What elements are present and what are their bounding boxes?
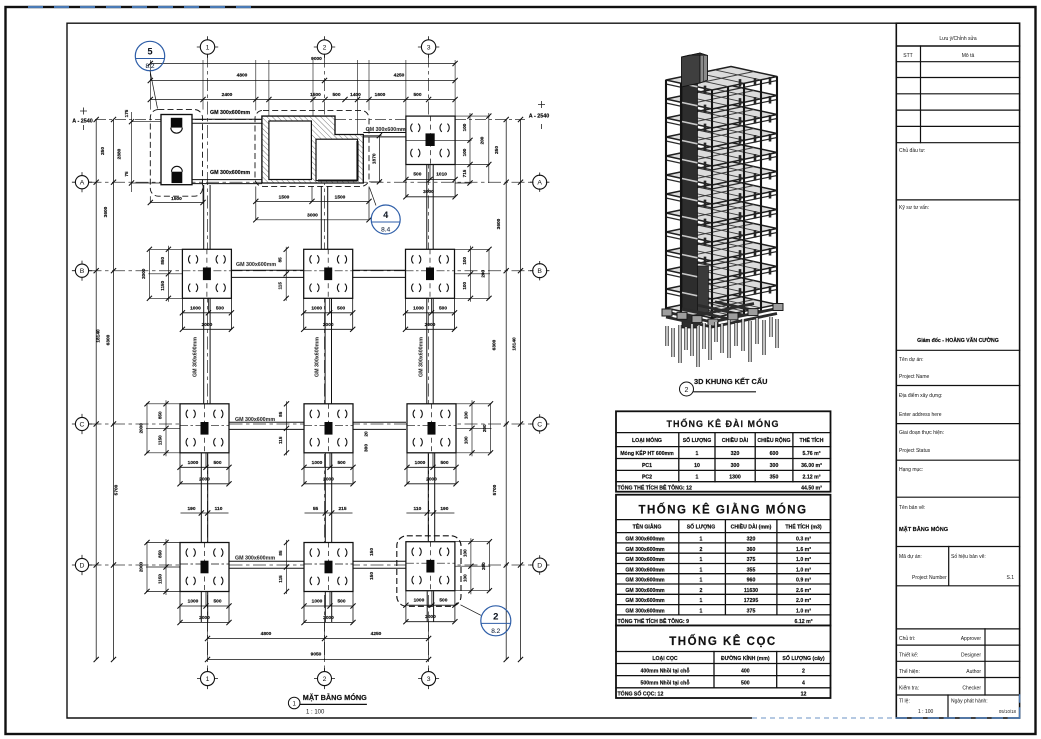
svg-text:STT: STT [903,53,912,59]
svg-text:2: 2 [493,612,498,623]
svg-text:850: 850 [158,550,163,558]
svg-text:Chủ đầu tư:: Chủ đầu tư: [899,147,925,154]
svg-text:2.12 m³: 2.12 m³ [803,475,821,481]
svg-text:8.2: 8.2 [145,63,154,70]
svg-text:A: A [80,180,85,187]
svg-text:LOẠI CỌC: LOẠI CỌC [652,656,678,662]
svg-text:GM 300x600mm: GM 300x600mm [235,417,275,423]
svg-text:200: 200 [481,562,486,570]
svg-text:GM 300x600mm: GM 300x600mm [236,262,276,268]
svg-text:400: 400 [741,668,750,674]
svg-text:THỂ TÍCH: THỂ TÍCH [800,436,824,444]
svg-text:1600: 1600 [375,92,386,98]
svg-text:1: 1 [696,475,699,481]
svg-text:4250: 4250 [371,631,382,637]
svg-text:10: 10 [694,463,700,469]
svg-text:Lưu ý/Chỉnh sửa: Lưu ý/Chỉnh sửa [939,35,976,42]
svg-text:CHIỀU DÀI: CHIỀU DÀI [722,437,749,444]
svg-text:GM 300x600mm: GM 300x600mm [625,557,665,563]
svg-text:2: 2 [802,668,805,674]
svg-text:Móng KÉP HT 600mm: Móng KÉP HT 600mm [620,449,674,457]
svg-text:600: 600 [770,451,779,457]
svg-text:350: 350 [770,475,779,481]
svg-text:Số hiệu bản vẽ:: Số hiệu bản vẽ: [951,554,986,560]
svg-text:GM 300x600mm: GM 300x600mm [419,337,425,377]
svg-text:17295: 17295 [744,598,759,604]
svg-text:100: 100 [462,574,467,582]
svg-text:4250: 4250 [394,73,405,79]
svg-text:115: 115 [278,575,283,583]
svg-text:TÊN GIẰNG: TÊN GIẰNG [633,523,662,531]
svg-text:1150: 1150 [158,574,163,584]
svg-text:C: C [80,421,85,428]
svg-text:B: B [80,268,85,275]
svg-text:2.6 m³: 2.6 m³ [796,588,811,594]
svg-text:2000: 2000 [141,268,146,279]
svg-text:1500: 1500 [279,195,290,201]
svg-text:3D KHUNG KẾT CẤU: 3D KHUNG KẾT CẤU [694,376,768,386]
svg-text:1: 1 [700,537,703,543]
svg-text:GM 300x600mm: GM 300x600mm [625,598,665,604]
svg-text:2: 2 [685,387,689,394]
svg-text:GM 300x600mm: GM 300x600mm [625,578,665,584]
svg-text:TỔNG THỂ TÍCH BÊ TÔNG: 12: TỔNG THỂ TÍCH BÊ TÔNG: 12 [618,484,692,492]
svg-text:18140: 18140 [511,337,517,351]
svg-text:3: 3 [427,44,431,51]
svg-text:100: 100 [462,257,467,265]
svg-text:2880: 2880 [117,148,123,159]
svg-text:3000: 3000 [423,189,434,195]
svg-text:100: 100 [464,411,469,419]
svg-text:Giai đoạn thực hiện:: Giai đoạn thực hiện: [899,430,944,436]
svg-text:500: 500 [741,681,750,687]
svg-text:2000: 2000 [139,561,144,572]
svg-text:1: 1 [206,676,210,683]
svg-text:355: 355 [747,567,756,573]
svg-text:300: 300 [364,444,370,452]
svg-text:250: 250 [100,147,106,155]
svg-text:SỐ LƯỢNG: SỐ LƯỢNG [683,437,712,444]
svg-text:3600: 3600 [496,218,502,229]
svg-text:GM 300x600mm: GM 300x600mm [625,537,665,543]
svg-text:2400: 2400 [222,92,233,98]
svg-text:400mm Nhồi tại chỗ: 400mm Nhồi tại chỗ [640,667,689,674]
svg-text:Ngày phát hành:: Ngày phát hành: [951,699,988,705]
svg-text:1.6 m³: 1.6 m³ [796,547,811,553]
svg-text:3: 3 [427,676,431,683]
svg-text:Chủ trì:: Chủ trì: [899,635,915,642]
svg-text:9050: 9050 [311,652,322,658]
svg-text:Giám đốc - HOÀNG VĂN CƯỜNG: Giám đốc - HOÀNG VĂN CƯỜNG [917,336,999,344]
svg-text:215: 215 [338,506,346,512]
svg-text:100: 100 [462,123,467,131]
svg-text:Enter address here: Enter address here [899,412,942,418]
svg-text:250: 250 [494,146,500,154]
svg-text:715: 715 [462,169,467,177]
svg-text:GM 300x600mm: GM 300x600mm [366,127,406,133]
svg-text:5: 5 [147,47,152,57]
svg-text:CHIỀU RỘNG: CHIỀU RỘNG [757,436,790,444]
svg-text:1300: 1300 [729,475,741,481]
svg-text:Tên bản vẽ:: Tên bản vẽ: [899,505,925,511]
svg-text:190: 190 [440,506,448,512]
svg-text:110: 110 [414,506,422,512]
svg-text:1500: 1500 [171,196,182,202]
svg-text:MẶT BẰNG MÓNG: MẶT BẰNG MÓNG [303,693,367,702]
svg-text:115: 115 [278,436,283,444]
svg-text:Kỹ sư tư vấn:: Kỹ sư tư vấn: [899,205,929,211]
svg-text:B: B [537,268,542,275]
svg-text:A: A [537,180,542,187]
svg-text:1010: 1010 [436,172,447,178]
svg-text:1 : 100: 1 : 100 [306,710,325,716]
svg-text:Checker: Checker [962,686,981,692]
svg-text:500mm Nhồi tại chỗ: 500mm Nhồi tại chỗ [640,680,689,687]
svg-text:Project Status: Project Status [899,448,931,454]
svg-text:850: 850 [160,257,165,265]
svg-text:320: 320 [747,537,756,543]
svg-text:GM 300x600mm: GM 300x600mm [210,110,250,116]
svg-text:SỐ LƯỢNG (cây): SỐ LƯỢNG (cây) [782,655,824,662]
svg-text:36.00 m³: 36.00 m³ [801,463,822,469]
svg-text:150: 150 [369,548,375,556]
svg-text:1: 1 [696,451,699,457]
svg-text:3600: 3600 [103,206,109,217]
svg-text:850: 850 [158,411,163,419]
svg-text:Tên dự án:: Tên dự án: [899,357,923,363]
svg-text:150: 150 [369,572,375,580]
svg-text:Kiểm tra:: Kiểm tra: [899,685,919,692]
svg-text:4800: 4800 [261,631,272,637]
svg-text:6300: 6300 [106,334,112,345]
svg-text:THỐNG KÊ CỌC: THỐNG KÊ CỌC [669,634,776,648]
svg-text:1500: 1500 [310,92,321,98]
svg-text:360: 360 [747,547,756,553]
svg-text:1500: 1500 [335,195,346,201]
svg-text:1: 1 [206,44,210,51]
svg-text:Author: Author [966,669,981,675]
svg-text:PC2: PC2 [642,475,652,481]
svg-text:Project Name: Project Name [899,374,930,380]
svg-text:500: 500 [413,92,421,98]
svg-text:8.4: 8.4 [381,227,390,234]
svg-text:20: 20 [364,431,370,437]
svg-text:200: 200 [481,270,486,278]
svg-text:100: 100 [462,549,467,557]
svg-text:GM 300x600mm: GM 300x600mm [193,337,199,377]
svg-text:ĐƯỜNG KÍNH (mm): ĐƯỜNG KÍNH (mm) [721,654,770,662]
svg-text:05/10/18: 05/10/18 [999,709,1017,714]
svg-text:GM 300x600mm: GM 300x600mm [235,556,275,562]
svg-text:Thể hiện:: Thể hiện: [899,668,920,675]
svg-text:1870: 1870 [371,153,377,164]
svg-text:A - 2540: A - 2540 [529,114,549,120]
svg-text:THỐNG KÊ GIẰNG MÓNG: THỐNG KÊ GIẰNG MÓNG [638,503,807,517]
svg-text:300: 300 [731,463,740,469]
svg-text:190: 190 [187,506,195,512]
svg-text:1: 1 [700,598,703,604]
svg-text:1: 1 [700,609,703,615]
svg-text:MẶT BẰNG MÓNG: MẶT BẰNG MÓNG [899,525,948,533]
svg-text:2: 2 [323,44,327,51]
svg-text:2: 2 [323,676,327,683]
svg-text:Hạng mục:: Hạng mục: [899,467,923,473]
svg-text:3000: 3000 [307,213,318,219]
svg-text:1.0 m³: 1.0 m³ [796,557,811,563]
svg-text:1: 1 [700,578,703,584]
svg-text:110: 110 [215,506,223,512]
svg-text:Mã dự án:: Mã dự án: [899,554,922,560]
svg-text:100: 100 [462,282,467,290]
svg-text:44.50 m³: 44.50 m³ [801,486,822,492]
svg-text:CHIỀU DÀI (mm): CHIỀU DÀI (mm) [731,524,772,531]
svg-text:4: 4 [802,681,805,687]
svg-text:2.0 m³: 2.0 m³ [796,598,811,604]
svg-text:SỐ LƯỢNG: SỐ LƯỢNG [687,524,716,531]
svg-text:GM 300x600mm: GM 300x600mm [625,547,665,553]
svg-text:S.1: S.1 [1006,575,1014,581]
svg-text:0.9 m³: 0.9 m³ [796,578,811,584]
svg-text:PC1: PC1 [642,463,652,469]
svg-text:GM 300x600mm: GM 300x600mm [625,567,665,573]
svg-text:GM 300x600mm: GM 300x600mm [625,588,665,594]
svg-text:TỔNG THỂ TÍCH BÊ TÔNG: 9: TỔNG THỂ TÍCH BÊ TÔNG: 9 [618,617,690,625]
svg-text:0.3 m³: 0.3 m³ [796,537,811,543]
svg-text:8.2: 8.2 [491,628,500,635]
svg-text:75: 75 [124,171,129,177]
svg-text:100: 100 [462,148,467,156]
svg-text:375: 375 [747,557,756,563]
svg-text:500: 500 [332,92,340,98]
svg-text:2: 2 [700,588,703,594]
svg-text:Project Number: Project Number [912,575,947,581]
svg-text:6.12 m³: 6.12 m³ [795,619,813,625]
svg-text:Approver: Approver [961,636,982,642]
svg-text:THỂ TÍCH (m3): THỂ TÍCH (m3) [785,523,822,531]
svg-text:18140: 18140 [96,329,102,343]
svg-text:C: C [537,421,542,428]
svg-text:GM 300x600mm: GM 300x600mm [210,170,250,176]
svg-text:A - 2540: A - 2540 [72,119,92,125]
svg-text:2000: 2000 [139,423,144,434]
svg-text:5.76 m³: 5.76 m³ [803,451,821,457]
svg-text:LOẠI MÓNG: LOẠI MÓNG [632,436,662,444]
svg-text:4: 4 [383,210,388,220]
svg-text:2: 2 [700,547,703,553]
svg-text:12: 12 [801,692,807,698]
svg-text:1150: 1150 [160,280,165,290]
svg-text:300: 300 [770,463,779,469]
svg-text:D: D [80,562,85,569]
svg-text:1400: 1400 [350,92,361,98]
svg-text:200: 200 [482,424,487,432]
svg-text:320: 320 [731,451,740,457]
svg-text:Designer: Designer [961,653,981,659]
svg-text:175: 175 [124,109,129,117]
svg-text:5700: 5700 [114,484,120,495]
svg-text:THỐNG KÊ ĐÀI MÓNG: THỐNG KÊ ĐÀI MÓNG [667,418,780,429]
svg-text:85: 85 [278,411,283,417]
svg-text:85: 85 [278,257,283,263]
svg-text:200: 200 [480,136,485,144]
svg-text:TỔNG SỐ CỌC: 12: TỔNG SỐ CỌC: 12 [618,691,664,698]
svg-text:11630: 11630 [744,588,758,594]
svg-text:55: 55 [313,506,319,512]
svg-text:Mô tả: Mô tả [962,53,975,59]
svg-text:500: 500 [413,172,421,178]
svg-text:4800: 4800 [237,73,248,79]
svg-text:100: 100 [464,436,469,444]
svg-text:85: 85 [278,550,283,556]
svg-text:Thiết kế:: Thiết kế: [899,653,918,659]
svg-text:1.0 m³: 1.0 m³ [796,567,811,573]
svg-text:5700: 5700 [492,484,498,495]
svg-text:GM 300x600mm: GM 300x600mm [625,609,665,615]
svg-text:1150: 1150 [158,435,163,445]
svg-text:375: 375 [747,609,756,615]
svg-text:1: 1 [700,567,703,573]
svg-text:960: 960 [747,578,756,584]
svg-text:Tỉ lệ:: Tỉ lệ: [899,698,910,705]
svg-text:D: D [537,562,542,569]
svg-text:115: 115 [278,282,283,290]
svg-text:Địa điểm xây dựng:: Địa điểm xây dựng: [899,392,942,399]
svg-text:6300: 6300 [492,339,498,350]
svg-text:1.0 m³: 1.0 m³ [796,609,811,615]
svg-text:GM 300x600mm: GM 300x600mm [315,337,321,377]
svg-text:1: 1 [700,557,703,563]
svg-text:1 : 100: 1 : 100 [918,709,934,715]
